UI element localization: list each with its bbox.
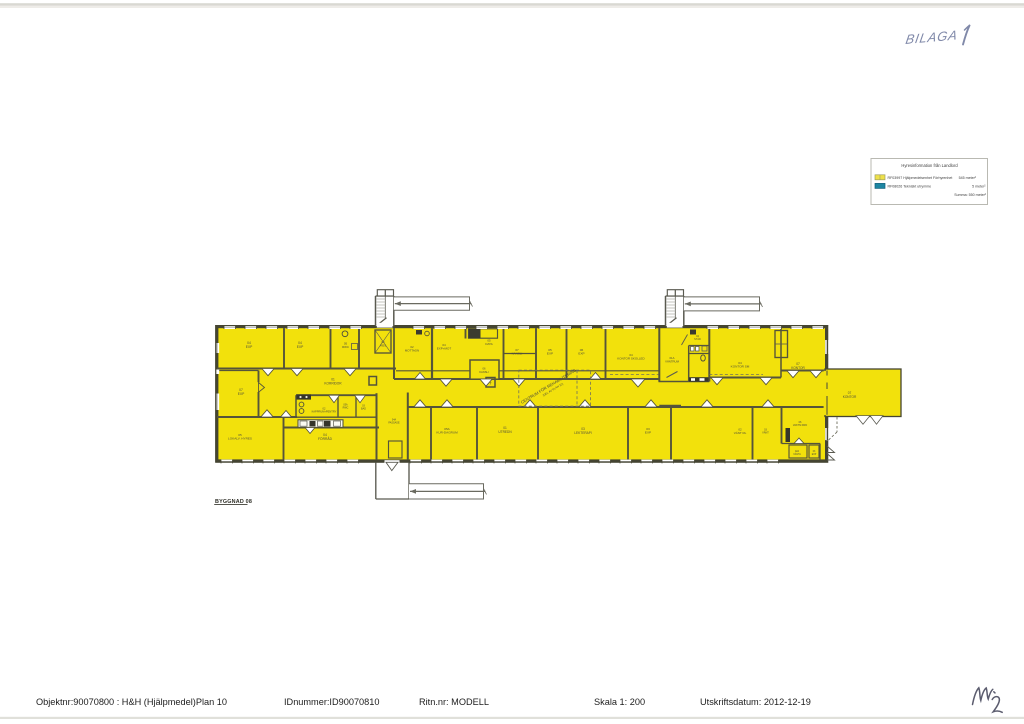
svg-text:BYGGNAD 08: BYGGNAD 08 — [215, 499, 252, 505]
svg-text:IDnummer:ID90070810: IDnummer:ID90070810 — [284, 697, 380, 707]
svg-text:5 meter²: 5 meter² — [972, 184, 986, 188]
svg-text:Skala 1: 200: Skala 1: 200 — [594, 697, 645, 707]
svg-text:Objektnr:90070800 : H&H (Hjäl: Objektnr:90070800 : H&H (Hjälpmedel)Plan… — [36, 697, 227, 707]
svg-text:RF03997 Hjälpmedelsenhet Förh: RF03997 Hjälpmedelsenhet Förhyrenhet — [888, 176, 953, 180]
svg-text:Hyresinformation från Landlord: Hyresinformation från Landlord — [901, 163, 958, 168]
svg-text:BILAGA: BILAGA — [905, 27, 960, 47]
svg-text:545 meter²: 545 meter² — [959, 176, 977, 180]
svg-text:Ritn.nr: MODELL: Ritn.nr: MODELL — [419, 697, 489, 707]
svg-text:Summa: 550 meter²: Summa: 550 meter² — [954, 193, 987, 197]
svg-text:Utskriftsdatum: 2012-12-19: Utskriftsdatum: 2012-12-19 — [700, 697, 811, 707]
svg-text:RF08026 Tekniskt utrymme: RF08026 Tekniskt utrymme — [888, 184, 932, 188]
